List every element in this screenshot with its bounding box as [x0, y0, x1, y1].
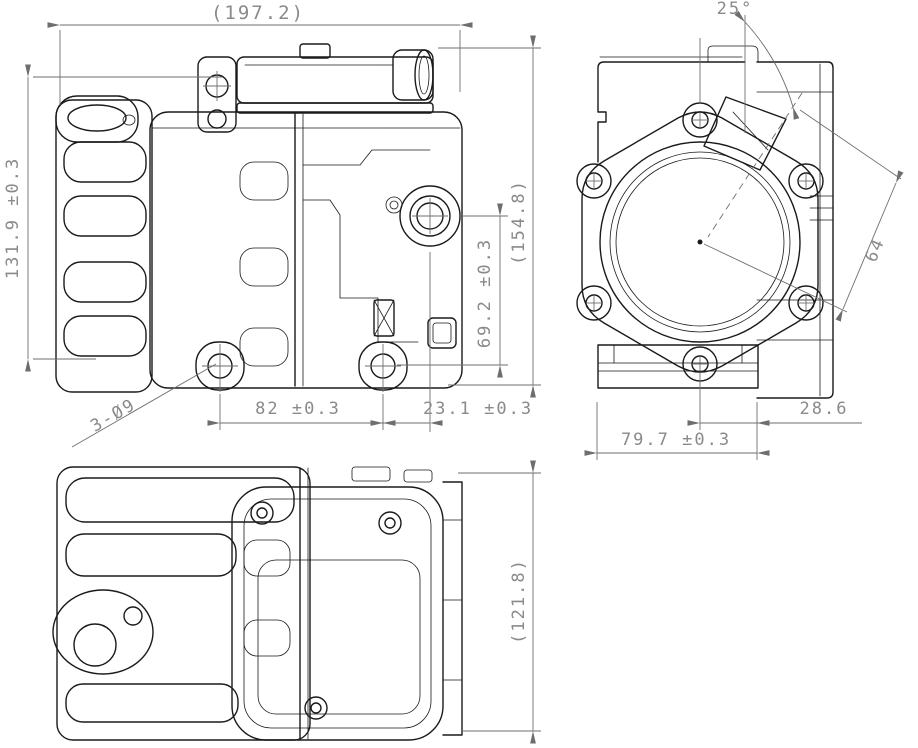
- head-cap: [300, 44, 330, 58]
- bottom-view: [53, 467, 462, 740]
- cover-bolts: [251, 502, 401, 719]
- dim-overall-length-text: (197.2): [211, 2, 305, 24]
- dim-port-height-text: 69.2 ±0.3: [475, 238, 495, 348]
- compressor-three-view-drawing: (197.2) 131.9 ±0.3 (154.8) 69.2 ±0.3 3-Ø…: [0, 0, 918, 748]
- cylinder-head-cover: [237, 57, 433, 103]
- dim-port-height: 69.2 ±0.3: [397, 216, 508, 365]
- rear-bracket: [598, 62, 745, 162]
- dim-mount-pitch-text: 82 ±0.3: [255, 399, 341, 419]
- dim-holes-note: 3-Ø9: [72, 364, 216, 447]
- dim-body-height-text: 131.9 ±0.3: [3, 157, 23, 279]
- dim-center-to-edge-text: 28.6: [800, 399, 849, 419]
- dim-overall-length: (197.2): [60, 2, 460, 105]
- dimensions: (197.2) 131.9 ±0.3 (154.8) 69.2 ±0.3 3-Ø…: [3, 0, 901, 731]
- lug-bore: [74, 624, 116, 666]
- side-view: [56, 44, 462, 392]
- sump-cover: [232, 487, 443, 740]
- drawing-canvas: (197.2) 131.9 ±0.3 (154.8) 69.2 ±0.3 3-Ø…: [0, 0, 918, 748]
- dim-foot-width-text: 79.7 ±0.3: [621, 430, 731, 450]
- dim-body-depth: (121.8): [458, 473, 541, 731]
- dim-diagonal-offset-text: 64: [861, 235, 889, 265]
- main-housing: [150, 112, 462, 388]
- dim-foot-width: 79.7 ±0.3: [597, 402, 757, 460]
- dim-body-depth-text: (121.8): [509, 558, 529, 644]
- rear-boss: [428, 318, 456, 348]
- dim-port-angle-text: 25°: [717, 0, 754, 19]
- dim-overall-height-text: (154.8): [509, 179, 529, 265]
- shaft-center: [698, 240, 703, 245]
- mount-lug-oval: [53, 590, 153, 674]
- dim-mount-to-port-text: 23.1 ±0.3: [423, 399, 533, 419]
- dim-diagonal-offset: 64: [704, 110, 901, 312]
- front-view: [577, 38, 833, 398]
- dim-holes-note-text: 3-Ø9: [87, 395, 139, 437]
- dim-mount-pitch: 82 ±0.3: [220, 394, 383, 430]
- top-lug-slot: [68, 105, 126, 131]
